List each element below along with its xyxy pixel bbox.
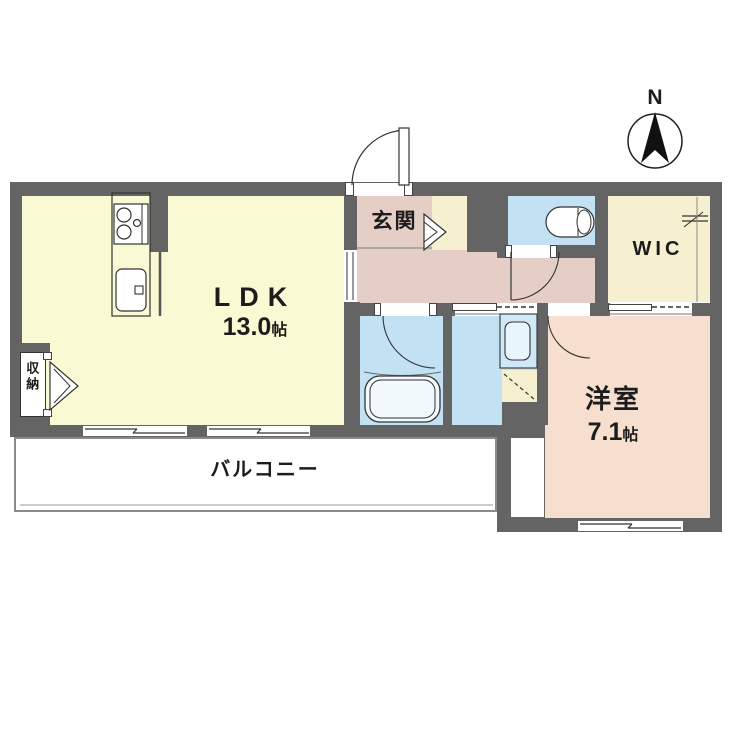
balcony-label: バルコニー (160, 459, 370, 481)
washbasin-icon (500, 314, 537, 368)
ldk-area-value: 13.0 (223, 313, 272, 341)
bedroom-area-label: 7.1帖 (545, 419, 681, 447)
kitchen-sink-icon (116, 269, 146, 311)
ldk-window-2-sash (209, 429, 309, 433)
ldk-window-1-sash (85, 429, 185, 433)
toilet-door-icon (511, 252, 559, 300)
compass-label: N (642, 86, 668, 109)
bathroom-door-icon (383, 316, 435, 368)
ldk-area-unit: 帖 (271, 322, 287, 339)
washing-machine-space-icon (504, 374, 535, 400)
ldk-hall-door-icon (347, 252, 353, 300)
kitchen-stove-icon (114, 204, 148, 244)
storage-door-icon (50, 362, 78, 410)
compass-north-arrow-icon (628, 112, 682, 168)
kitchen-counter-icon (112, 193, 160, 316)
floorplan-canvas: N LDK 13.0帖 玄関 WIC 洋室 7.1帖 バルコニー 収納 (0, 0, 733, 733)
bedroom-label: 洋室 (545, 385, 681, 414)
entrance-label: 玄関 (352, 210, 437, 233)
ldk-area-label: 13.0帖 (180, 314, 330, 342)
bedroom-area-unit: 帖 (622, 427, 638, 444)
toilet-icon (546, 207, 594, 237)
bedroom-area-value: 7.1 (588, 418, 623, 446)
bedroom-window-sash (580, 524, 681, 528)
wic-label: WIC (608, 238, 708, 260)
ldk-room-label: LDK (180, 283, 330, 313)
bathtub-icon (364, 372, 441, 422)
entrance-door-icon (352, 128, 409, 185)
closet-hanger-icon (682, 212, 708, 227)
storage-label: 収納 (24, 361, 38, 393)
bedroom-door-icon (548, 316, 590, 358)
plan-linework (0, 0, 733, 733)
